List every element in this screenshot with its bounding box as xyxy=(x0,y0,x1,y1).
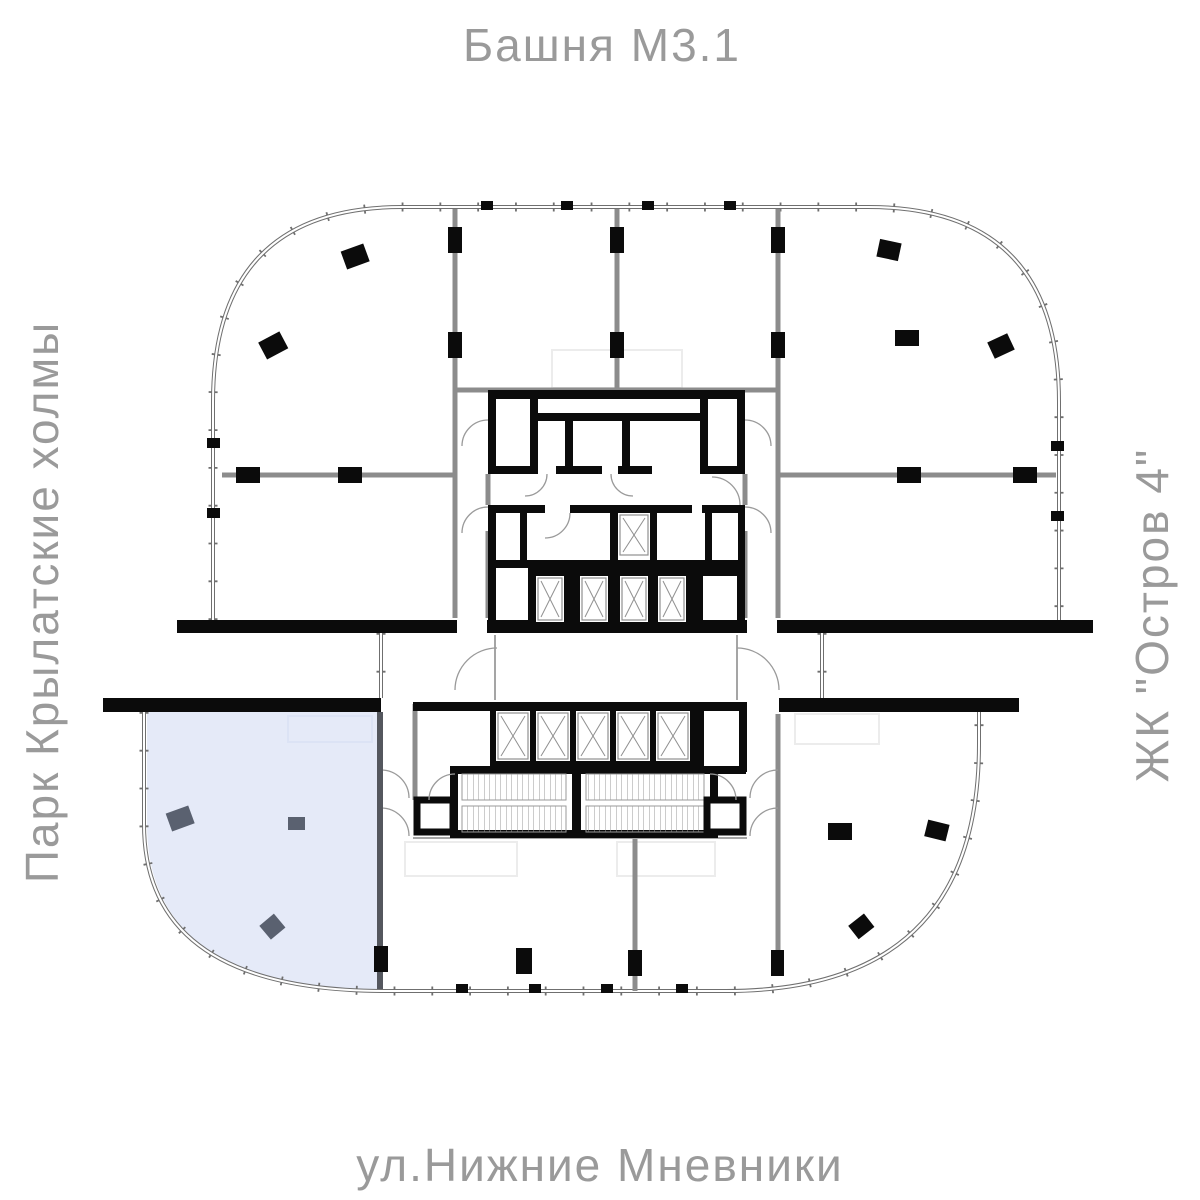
column xyxy=(288,817,305,830)
label-tower: Башня М3.1 xyxy=(463,18,741,72)
core-upper-block xyxy=(488,390,745,474)
elevator-bank-lower xyxy=(413,702,747,838)
label-zhk-ostrov-4: ЖК "Остров 4" xyxy=(1125,448,1179,783)
core-middle-block xyxy=(488,505,745,568)
label-street-nizhnie-mnevniki: ул.Нижние Мневники xyxy=(356,1138,843,1192)
label-park-krylatskie-kholmy: Парк Крылатские холмы xyxy=(15,321,69,883)
core-corner-room xyxy=(417,800,453,832)
highlighted-unit[interactable] xyxy=(147,712,381,989)
core-corner-room xyxy=(707,800,743,832)
floor-plan xyxy=(0,0,1200,1200)
floor-plan-page: Башня М3.1 Парк Крылатские холмы ЖК "Ост… xyxy=(0,0,1200,1200)
stairwell xyxy=(462,774,704,832)
elevator-shaft-icons-lower xyxy=(498,713,688,759)
